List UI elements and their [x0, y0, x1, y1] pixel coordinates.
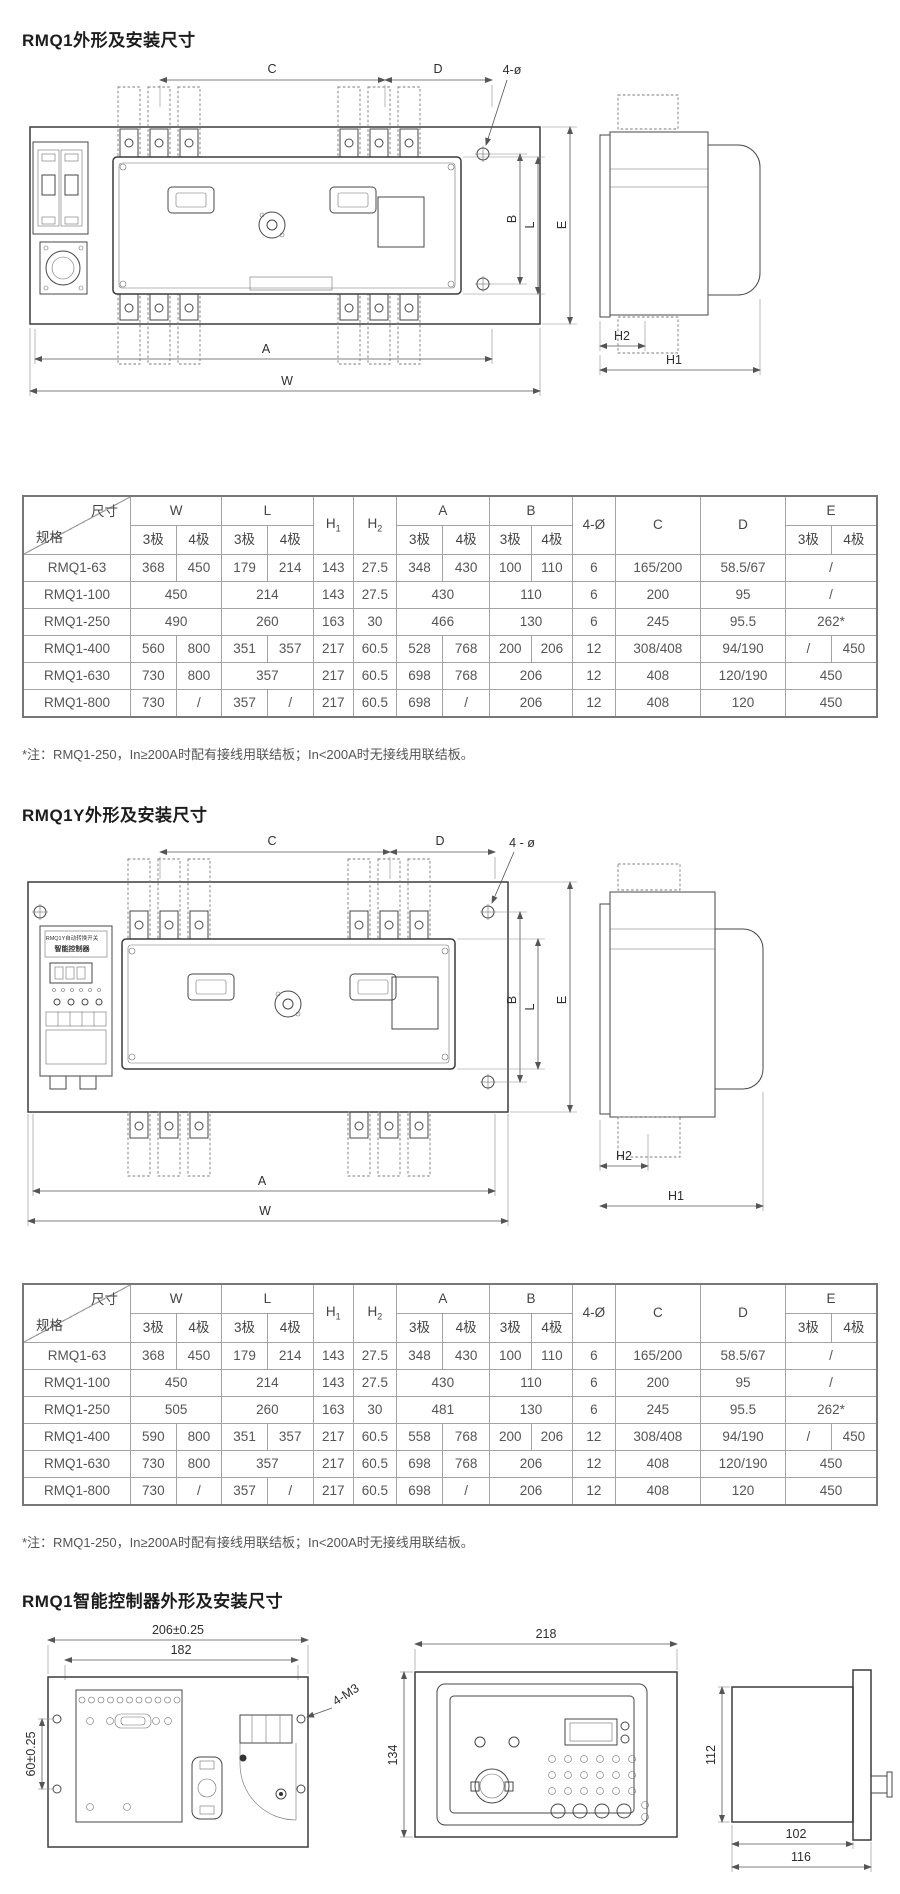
dim-label-d: D: [433, 62, 442, 76]
dim-label-depth-body: 102: [786, 1827, 807, 1841]
dim-value-cell: 450: [131, 1370, 222, 1397]
dim-value-cell: 698: [396, 690, 443, 718]
dim-value-cell: 12: [573, 1451, 616, 1478]
dim-value-cell: 450: [831, 1424, 877, 1451]
controller-outline-drawing: 206±0.25 182: [0, 1622, 900, 1894]
dim-value-cell: 95: [700, 582, 785, 609]
spec-cell: RMQ1-400: [23, 636, 131, 663]
dim-value-cell: 165/200: [615, 1343, 700, 1370]
dim-label-w: W: [281, 374, 293, 388]
rmq1-side-view: [600, 95, 760, 353]
dim-value-cell: 6: [573, 582, 616, 609]
table-row: RMQ1-25050526016330481130624595.5262*: [23, 1397, 877, 1424]
dim-value-cell: 120/190: [700, 1451, 785, 1478]
dim-value-cell: 450: [176, 555, 222, 582]
dim-label-c: C: [267, 62, 276, 76]
switch-body: [113, 157, 461, 294]
dim-value-cell: 357: [222, 1478, 268, 1506]
dim-value-cell: 12: [573, 636, 616, 663]
subcol-pole3: 3极: [396, 526, 443, 555]
dim-value-cell: 768: [443, 1424, 490, 1451]
dim-value-cell: 450: [786, 690, 877, 718]
spec-cell: RMQ1-250: [23, 1397, 131, 1424]
dim-value-cell: 143: [313, 1343, 354, 1370]
dim-label-width-inner: 182: [171, 1643, 192, 1657]
dim-label-l: L: [523, 221, 537, 228]
col-a: A: [396, 1284, 489, 1314]
subcol-pole3: 3极: [396, 1314, 443, 1343]
col-a: A: [396, 496, 489, 526]
table-row: RMQ1-800730/357/21760.5698/2061240812045…: [23, 690, 877, 718]
dim-label-l: L: [523, 1003, 537, 1010]
table-row: RMQ1-6336845017921414327.534843010011061…: [23, 1343, 877, 1370]
dim-value-cell: 768: [443, 1451, 490, 1478]
dim-value-cell: 120: [700, 1478, 785, 1506]
dim-value-cell: 12: [573, 663, 616, 690]
dim-label-b: B: [505, 996, 519, 1004]
dim-value-cell: 6: [573, 1370, 616, 1397]
dim-value-cell: 408: [615, 663, 700, 690]
dim-value-cell: 179: [222, 1343, 268, 1370]
dim-value-cell: 800: [176, 636, 222, 663]
dim-value-cell: 214: [222, 582, 313, 609]
dim-value-cell: 214: [267, 555, 313, 582]
dim-label-h2: H2: [614, 329, 630, 343]
dim-value-cell: 200: [615, 582, 700, 609]
corner-label-dim: 尺寸: [91, 1293, 118, 1308]
dim-value-cell: 357: [222, 663, 313, 690]
subcol-pole4: 4极: [267, 526, 313, 555]
switch-body: [122, 939, 455, 1069]
spec-cell: RMQ1-63: [23, 1343, 131, 1370]
subcol-pole3: 3极: [222, 526, 268, 555]
dim-value-cell: /: [176, 1478, 222, 1506]
dim-value-cell: 698: [396, 1478, 443, 1506]
corner-label-spec: 规格: [36, 1319, 63, 1334]
dim-label-h1: H1: [666, 353, 682, 367]
dim-value-cell: 481: [396, 1397, 489, 1424]
dim-value-cell: 357: [267, 636, 313, 663]
col-b: B: [489, 1284, 572, 1314]
subcol-pole4: 4极: [831, 526, 877, 555]
dim-value-cell: 730: [131, 1451, 177, 1478]
dim-value-cell: 351: [222, 636, 268, 663]
dim-value-cell: 217: [313, 1478, 354, 1506]
dim-value-cell: 450: [786, 663, 877, 690]
dim-value-cell: 430: [443, 555, 490, 582]
dim-value-cell: /: [786, 636, 832, 663]
col-phi: 4-Ø: [573, 1284, 616, 1343]
controller-label-line2: 智能控制器: [55, 944, 91, 953]
col-w: W: [131, 1284, 222, 1314]
dim-label-side-height: 112: [704, 1745, 718, 1765]
col-e: E: [786, 496, 877, 526]
table-row: RMQ1-63073080035721760.56987682061240812…: [23, 1451, 877, 1478]
dim-value-cell: 58.5/67: [700, 555, 785, 582]
dim-value-cell: 430: [443, 1343, 490, 1370]
dim-value-cell: 12: [573, 1424, 616, 1451]
subcol-pole3: 3极: [131, 526, 177, 555]
dim-value-cell: 217: [313, 1451, 354, 1478]
round-connector: [40, 242, 87, 294]
col-h2: H2: [354, 1284, 397, 1343]
spec-cell: RMQ1-630: [23, 1451, 131, 1478]
dim-value-cell: 768: [443, 663, 490, 690]
dim-value-cell: 698: [396, 663, 443, 690]
dim-value-cell: 590: [131, 1424, 177, 1451]
subcol-pole3: 3极: [222, 1314, 268, 1343]
dim-value-cell: /: [786, 1343, 877, 1370]
dimensions: C D 4-ø B L E A W H2 H1: [30, 62, 760, 396]
dim-value-cell: 206: [489, 690, 572, 718]
subcol-pole4: 4极: [267, 1314, 313, 1343]
note-text: *注：RMQ1-250，In≥200A时配有接线用联结板；In<200A时无接线…: [22, 1532, 900, 1551]
rmq1-dimension-table: 尺寸 规格 W L H1 H2 A B 4-Ø C D E 3极 4极 3极 4…: [22, 495, 878, 718]
col-h1: H1: [313, 496, 354, 555]
dim-value-cell: 6: [573, 609, 616, 636]
dim-value-cell: 214: [222, 1370, 313, 1397]
dim-value-cell: /: [443, 1478, 490, 1506]
breaker-module: [33, 142, 88, 234]
dim-value-cell: 357: [267, 1424, 313, 1451]
dim-value-cell: 730: [131, 1478, 177, 1506]
table-row: RMQ1-63073080035721760.56987682061240812…: [23, 663, 877, 690]
dim-label-b: B: [505, 215, 519, 223]
controller-front-view: 218 134: [386, 1627, 677, 1837]
dim-value-cell: 30: [354, 1397, 397, 1424]
dim-label-holes: 4-ø: [503, 63, 522, 77]
dim-value-cell: /: [786, 1424, 832, 1451]
dim-value-cell: 348: [396, 555, 443, 582]
col-phi: 4-Ø: [573, 496, 616, 555]
dim-value-cell: 730: [131, 663, 177, 690]
dim-label-screws: 4-M3: [330, 1681, 362, 1708]
dim-value-cell: 262*: [786, 609, 877, 636]
mounting-holes: [475, 146, 491, 292]
rmq1-outline-drawing: C D 4-ø B L E A W H2 H1: [0, 57, 900, 417]
dim-value-cell: 558: [396, 1424, 443, 1451]
dim-label-d: D: [435, 834, 444, 848]
dim-value-cell: 163: [313, 1397, 354, 1424]
dim-value-cell: 351: [222, 1424, 268, 1451]
subcol-pole4: 4极: [531, 526, 573, 555]
dim-value-cell: 143: [313, 582, 354, 609]
spec-cell: RMQ1-800: [23, 690, 131, 718]
dim-value-cell: /: [176, 690, 222, 718]
dim-value-cell: 100: [489, 1343, 531, 1370]
dim-value-cell: 27.5: [354, 555, 397, 582]
dim-value-cell: 368: [131, 555, 177, 582]
dim-value-cell: 200: [489, 1424, 531, 1451]
dim-value-cell: 450: [786, 1478, 877, 1506]
dim-value-cell: 120/190: [700, 663, 785, 690]
dim-value-cell: 95: [700, 1370, 785, 1397]
dim-value-cell: 30: [354, 609, 397, 636]
rmq1y-front-view: RMQ1Y自动转换开关 智能控制器: [28, 859, 508, 1176]
spec-cell: RMQ1-100: [23, 582, 131, 609]
dim-value-cell: 179: [222, 555, 268, 582]
dim-value-cell: 430: [396, 582, 489, 609]
subcol-pole3: 3极: [131, 1314, 177, 1343]
mounting-holes: [32, 904, 496, 1090]
dim-value-cell: 800: [176, 1451, 222, 1478]
dim-value-cell: 27.5: [354, 582, 397, 609]
rmq1y-side-view: [600, 864, 763, 1157]
col-c: C: [615, 496, 700, 555]
dim-value-cell: 60.5: [354, 1424, 397, 1451]
dim-value-cell: 94/190: [700, 1424, 785, 1451]
spec-cell: RMQ1-630: [23, 663, 131, 690]
dim-value-cell: /: [786, 1370, 877, 1397]
table-row: RMQ1-40056080035135721760.55287682002061…: [23, 636, 877, 663]
subcol-pole4: 4极: [176, 1314, 222, 1343]
dim-value-cell: 110: [531, 1343, 573, 1370]
dim-value-cell: /: [267, 1478, 313, 1506]
col-e: E: [786, 1284, 877, 1314]
dim-value-cell: 6: [573, 555, 616, 582]
dim-value-cell: 357: [222, 690, 268, 718]
dim-value-cell: 206: [531, 636, 573, 663]
spec-cell: RMQ1-800: [23, 1478, 131, 1506]
dim-value-cell: 430: [396, 1370, 489, 1397]
subcol-pole4: 4极: [443, 1314, 490, 1343]
dim-value-cell: 110: [489, 582, 572, 609]
rmq1y-outline-drawing: RMQ1Y自动转换开关 智能控制器 C: [0, 834, 900, 1259]
dim-value-cell: 110: [489, 1370, 572, 1397]
spec-cell: RMQ1-400: [23, 1424, 131, 1451]
top-terminals: [118, 87, 420, 157]
dim-label-a: A: [262, 342, 271, 356]
dim-value-cell: 60.5: [354, 663, 397, 690]
subcol-pole3: 3极: [786, 526, 832, 555]
col-b: B: [489, 496, 572, 526]
dim-value-cell: 130: [489, 609, 572, 636]
dim-value-cell: 245: [615, 609, 700, 636]
dim-value-cell: 95.5: [700, 1397, 785, 1424]
dim-value-cell: 450: [131, 582, 222, 609]
dim-value-cell: 60.5: [354, 690, 397, 718]
dim-value-cell: 408: [615, 1478, 700, 1506]
dim-value-cell: 206: [489, 1478, 572, 1506]
dim-value-cell: 698: [396, 1451, 443, 1478]
col-l: L: [222, 496, 313, 526]
bottom-terminals: [128, 1112, 430, 1176]
dim-value-cell: 217: [313, 1424, 354, 1451]
section1-title: RMQ1外形及安装尺寸: [22, 0, 900, 51]
dim-label-w: W: [259, 1204, 271, 1218]
dim-value-cell: 450: [176, 1343, 222, 1370]
table-row: RMQ1-25049026016330466130624595.5262*: [23, 609, 877, 636]
dim-value-cell: /: [786, 555, 877, 582]
vent-holes: [79, 1697, 180, 1703]
dim-label-e: E: [555, 221, 569, 229]
dim-value-cell: 768: [443, 636, 490, 663]
dim-value-cell: 143: [313, 555, 354, 582]
dim-value-cell: /: [786, 582, 877, 609]
dim-label-c: C: [267, 834, 276, 848]
subcol-pole3: 3极: [489, 526, 531, 555]
dim-value-cell: 130: [489, 1397, 572, 1424]
col-w: W: [131, 496, 222, 526]
dim-value-cell: 206: [531, 1424, 573, 1451]
dim-value-cell: 214: [267, 1343, 313, 1370]
table-row: RMQ1-10045021414327.5430110620095/: [23, 582, 877, 609]
dim-value-cell: 206: [489, 1451, 572, 1478]
col-c: C: [615, 1284, 700, 1343]
corner-cell: 尺寸 规格: [23, 496, 131, 555]
rmq1y-dimension-table: 尺寸 规格 W L H1 H2 A B 4-Ø C D E 3极 4极 3极 4…: [22, 1283, 878, 1506]
dim-value-cell: 60.5: [354, 636, 397, 663]
table-row: RMQ1-40059080035135721760.55587682002061…: [23, 1424, 877, 1451]
table-row: RMQ1-800730/357/21760.5698/2061240812045…: [23, 1478, 877, 1506]
dim-value-cell: 27.5: [354, 1343, 397, 1370]
top-terminals: [128, 859, 430, 939]
section2-title: RMQ1Y外形及安装尺寸: [22, 763, 900, 826]
dim-value-cell: 560: [131, 636, 177, 663]
dim-label-height-side: 60±0.25: [24, 1731, 38, 1776]
dim-value-cell: 95.5: [700, 609, 785, 636]
dim-value-cell: 217: [313, 636, 354, 663]
datasheet-page: RMQ1外形及安装尺寸: [0, 0, 900, 1894]
dim-value-cell: 12: [573, 690, 616, 718]
col-d: D: [700, 496, 785, 555]
dim-value-cell: 6: [573, 1343, 616, 1370]
dim-value-cell: 100: [489, 555, 531, 582]
dim-value-cell: 800: [176, 663, 222, 690]
controller-label-line1: RMQ1Y自动转换开关: [46, 934, 99, 942]
dim-value-cell: 217: [313, 690, 354, 718]
dim-value-cell: 165/200: [615, 555, 700, 582]
dim-value-cell: 58.5/67: [700, 1343, 785, 1370]
dim-value-cell: 262*: [786, 1397, 877, 1424]
dim-value-cell: 308/408: [615, 636, 700, 663]
spec-cell: RMQ1-63: [23, 555, 131, 582]
col-h1: H1: [313, 1284, 354, 1343]
dim-value-cell: 408: [615, 690, 700, 718]
col-d: D: [700, 1284, 785, 1343]
subcol-pole3: 3极: [489, 1314, 531, 1343]
dim-value-cell: 368: [131, 1343, 177, 1370]
rmq1-front-view: [30, 87, 540, 364]
controller-rear-view: 206±0.25 182: [24, 1623, 362, 1847]
dim-value-cell: 408: [615, 1451, 700, 1478]
col-h2: H2: [354, 496, 397, 555]
dim-label-h1: H1: [668, 1189, 684, 1203]
corner-label-dim: 尺寸: [91, 505, 118, 520]
dimensions: C D 4 - ø B L E A W H2 H1: [28, 834, 763, 1226]
dim-value-cell: 348: [396, 1343, 443, 1370]
dim-label-e: E: [555, 996, 569, 1004]
dim-value-cell: 450: [831, 636, 877, 663]
subcol-pole4: 4极: [831, 1314, 877, 1343]
dim-value-cell: 120: [700, 690, 785, 718]
dim-value-cell: 60.5: [354, 1478, 397, 1506]
dim-value-cell: 800: [176, 1424, 222, 1451]
dim-value-cell: 730: [131, 690, 177, 718]
dim-value-cell: 60.5: [354, 1451, 397, 1478]
dim-value-cell: 200: [615, 1370, 700, 1397]
dim-value-cell: 163: [313, 609, 354, 636]
dim-value-cell: 505: [131, 1397, 222, 1424]
dim-label-front-width: 218: [536, 1627, 557, 1641]
spec-cell: RMQ1-100: [23, 1370, 131, 1397]
dim-label-width-outer: 206±0.25: [152, 1623, 204, 1637]
controller-unit: RMQ1Y自动转换开关 智能控制器: [40, 926, 112, 1089]
dim-value-cell: 110: [531, 555, 573, 582]
dim-value-cell: 490: [131, 609, 222, 636]
subcol-pole4: 4极: [176, 526, 222, 555]
subcol-pole3: 3极: [786, 1314, 832, 1343]
dim-value-cell: 206: [489, 663, 572, 690]
corner-cell: 尺寸 规格: [23, 1284, 131, 1343]
dim-value-cell: 12: [573, 1478, 616, 1506]
section3-title: RMQ1智能控制器外形及安装尺寸: [22, 1551, 900, 1612]
transformer: [192, 1757, 222, 1819]
dim-value-cell: 357: [222, 1451, 313, 1478]
dim-value-cell: 450: [786, 1451, 877, 1478]
dim-value-cell: /: [443, 690, 490, 718]
dim-value-cell: 260: [222, 609, 313, 636]
dim-value-cell: 308/408: [615, 1424, 700, 1451]
col-l: L: [222, 1284, 313, 1314]
dim-label-h2: H2: [616, 1149, 632, 1163]
dim-value-cell: 200: [489, 636, 531, 663]
dim-value-cell: 245: [615, 1397, 700, 1424]
dim-label-depth-total: 116: [791, 1850, 811, 1864]
subcol-pole4: 4极: [443, 526, 490, 555]
table-row: RMQ1-10045021414327.5430110620095/: [23, 1370, 877, 1397]
dim-label-holes: 4 - ø: [509, 836, 535, 850]
dim-value-cell: 6: [573, 1397, 616, 1424]
lock-knob: [471, 1769, 513, 1803]
cable-elbow: [240, 1715, 297, 1820]
table-row: RMQ1-6336845017921414327.534843010011061…: [23, 555, 877, 582]
subcol-pole4: 4极: [531, 1314, 573, 1343]
dim-value-cell: 528: [396, 636, 443, 663]
dim-value-cell: 217: [313, 663, 354, 690]
controller-side-view: 112 102 116: [704, 1670, 892, 1872]
dim-value-cell: 94/190: [700, 636, 785, 663]
dim-value-cell: /: [267, 690, 313, 718]
dim-value-cell: 143: [313, 1370, 354, 1397]
dim-value-cell: 27.5: [354, 1370, 397, 1397]
corner-label-spec: 规格: [36, 531, 63, 546]
dim-value-cell: 466: [396, 609, 489, 636]
note-text: *注：RMQ1-250，In≥200A时配有接线用联结板；In<200A时无接线…: [22, 744, 900, 763]
dim-label-a: A: [258, 1174, 267, 1188]
dim-value-cell: 260: [222, 1397, 313, 1424]
db9-connector: [107, 1714, 160, 1728]
dim-label-front-height: 134: [386, 1745, 400, 1766]
spec-cell: RMQ1-250: [23, 609, 131, 636]
